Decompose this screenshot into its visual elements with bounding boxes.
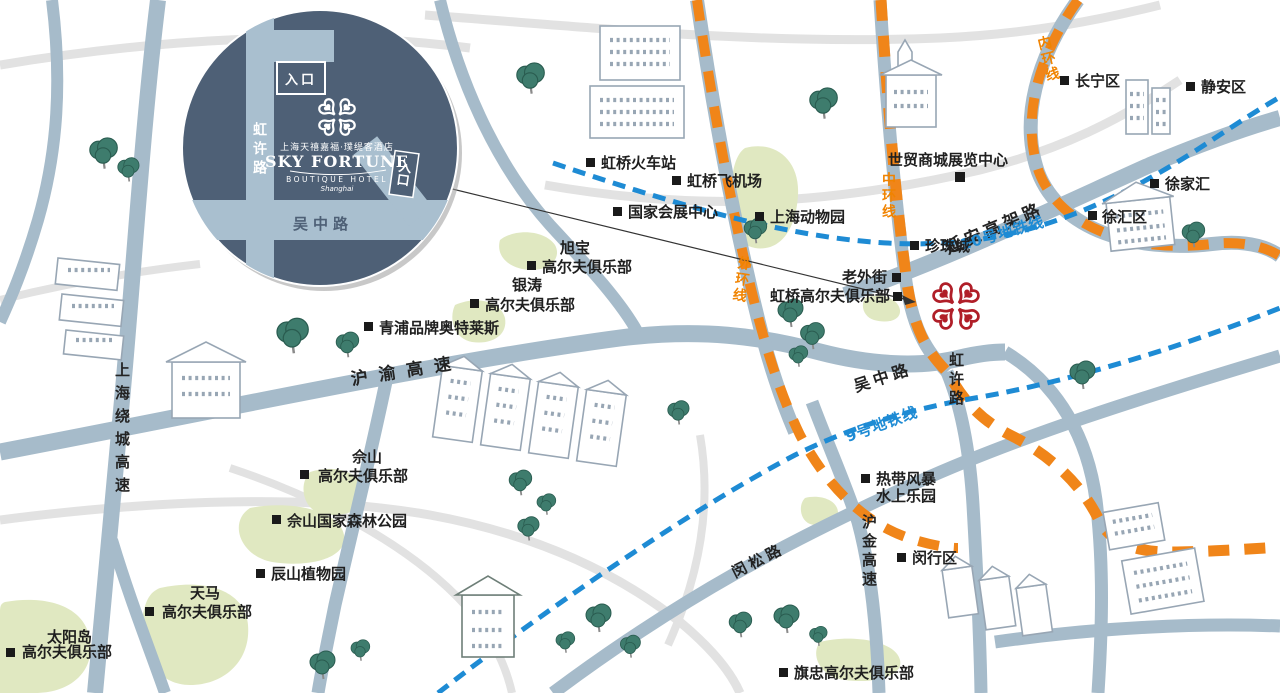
poi-marker [256,569,265,578]
poi-label-tianma-line1: 天马 [190,584,220,602]
poi-label-sheshan-forest: 佘山国家森林公园 [286,512,407,530]
poi-marker [861,474,870,483]
poi-marker [470,299,479,308]
metro-label-line9: 9号地铁线 [843,403,920,446]
poi-label-tropical-storm-line1: 热带风暴 [876,470,937,488]
poi-label-xubao-line1: 旭宝 [559,239,590,257]
poi-label-necc: 国家会展中心 [628,203,718,221]
poi-marker [527,261,536,270]
road-label-minsong: 闵松路 [729,540,788,582]
poi-label-hongqiao-golf: 虹桥高尔夫俱乐部 [770,287,890,305]
poi-marker [364,322,373,331]
hotel-brand-en: SKY FORTUNE [265,152,409,171]
poi-label-tropical-storm-line2: 水上乐园 [876,487,936,505]
poi-label-hongqiao-railway: 虹桥火车站 [601,154,676,172]
poi-marker [755,212,764,221]
bottom-right-houses [940,554,1052,636]
poi-marker [897,553,906,562]
map-svg: 沪渝高速 延安高架路 吴中路 虹许路 上海绕城高速 沪金高速 闵松路 外环线 中… [0,0,1280,693]
poi-label-pearl-city: 珍珠城 [925,237,970,255]
poi-marker [6,648,15,657]
poi-label-shanghaimart: 世贸商城展览中心 [888,151,1008,169]
poi-label-xuhui: 徐汇区 [1101,208,1147,226]
poi-label-laowai-street: 老外街 [841,268,887,286]
poi-marker [272,515,281,524]
poi-label-jingan: 静安区 [1201,78,1246,96]
railway-station-buildings [590,26,684,138]
poi-marker [672,176,681,185]
poi-marker [300,470,309,479]
poi-label-yintao-line2: 高尔夫俱乐部 [485,296,575,314]
poi-marker [145,607,154,616]
poi-label-sheshan-golf-line1: 佘山 [351,448,382,466]
road-minsong [553,356,1280,693]
hotel-brand-subtitle: BOUTIQUE HOTEL [286,175,388,184]
poi-marker [893,292,902,301]
poi-label-tianma-line2: 高尔夫俱乐部 [162,603,252,621]
poi-label-xubao-line2: 高尔夫俱乐部 [542,258,632,276]
poi-label-yintao-line1: 银涛 [512,276,542,294]
road-label-hongxu: 虹许路 [947,352,965,409]
poi-marker [613,207,622,216]
road-hongxu [947,372,981,693]
poi-label-minhang: 闵行区 [912,549,957,567]
poi-marker [892,273,901,282]
hotel-inset: 入口 入口 虹许路 吴中路 上海天禧嘉福·璞缇客酒店 SKY FORTUNE B… [175,8,470,291]
poi-label-qingpu-outlets: 青浦品牌奥特莱斯 [379,319,499,337]
poi-marker [586,158,595,167]
ring-label-middle: 中环线 [880,171,896,220]
left-small-houses [55,258,123,360]
bottom-left-house [456,576,520,657]
hotel-brand-script: Shanghai [321,185,354,193]
poi-marker [955,172,965,182]
poi-marker [1150,179,1159,188]
poi-marker [910,241,919,250]
poi-label-sheshan-golf-line2: 高尔夫俱乐部 [318,467,408,485]
poi-marker [1186,82,1195,91]
hotel-location-map: 沪渝高速 延安高架路 吴中路 虹许路 上海绕城高速 沪金高速 闵松路 外环线 中… [0,0,1280,693]
poi-marker [1088,211,1097,220]
road-label-raocheng: 上海绕城高速 [113,362,131,500]
poi-marker [779,668,788,677]
poi-label-xujiahui: 徐家汇 [1164,175,1210,193]
inset-entrance-top-label: 入口 [285,73,317,88]
bottom-right-big-buildings [1103,498,1204,616]
poi-label-chenshan-garden: 辰山植物园 [271,565,346,583]
poi-label-sun-island-line2: 高尔夫俱乐部 [22,643,112,661]
left-house [166,342,246,418]
poi-marker [1060,76,1069,85]
poi-label-changning: 长宁区 [1075,72,1120,90]
poi-label-shanghai-zoo: 上海动物园 [770,208,845,226]
poi-label-hongqiao-airport: 虹桥飞机场 [687,172,762,190]
road-label-hujin: 沪金高速 [860,513,878,590]
poi-label-qizhong-golf: 旗忠高尔夫俱乐部 [794,664,914,682]
tower-buildings [1126,80,1170,134]
hotel-clover-marker [931,281,980,330]
inset-road-label-wuzhong: 吴中路 [293,215,353,233]
